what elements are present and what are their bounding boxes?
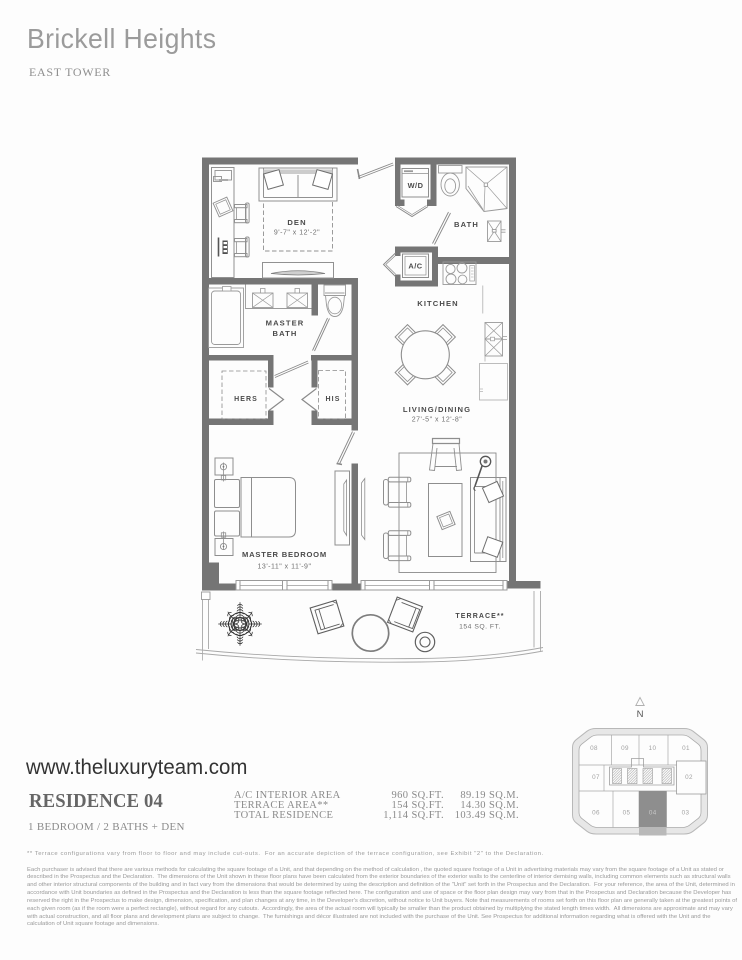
svg-text:04: 04 [649, 810, 657, 817]
svg-text:BATH: BATH [454, 220, 479, 229]
svg-text:HERS: HERS [234, 396, 258, 403]
svg-text:N: N [637, 709, 644, 720]
svg-text:W/D: W/D [408, 181, 424, 190]
svg-text:MASTER BEDROOM: MASTER BEDROOM [242, 550, 327, 559]
svg-text:27'-5" x 12'-8": 27'-5" x 12'-8" [412, 417, 463, 424]
svg-text:KITCHEN: KITCHEN [417, 299, 458, 308]
svg-text:A/C: A/C [408, 262, 422, 271]
svg-text:BATH: BATH [273, 329, 298, 338]
svg-text:06: 06 [592, 810, 600, 817]
svg-text:9'-7" x 12'-2": 9'-7" x 12'-2" [274, 230, 320, 237]
svg-text:03: 03 [682, 810, 690, 817]
svg-text:13'-11" x 11'-9": 13'-11" x 11'-9" [258, 564, 312, 571]
svg-text:154 SQ. FT.: 154 SQ. FT. [459, 624, 501, 631]
svg-text:LIVING/DINING: LIVING/DINING [403, 405, 471, 414]
svg-text:09: 09 [621, 745, 629, 752]
svg-text:07: 07 [592, 774, 600, 781]
svg-text:08: 08 [590, 745, 598, 752]
svg-text:02: 02 [685, 774, 693, 781]
svg-text:TERRACE**: TERRACE** [455, 613, 504, 620]
svg-text:MASTER: MASTER [266, 319, 305, 328]
svg-text:HIS: HIS [326, 396, 341, 403]
svg-text:01: 01 [682, 745, 690, 752]
svg-text:DEN: DEN [287, 218, 306, 227]
svg-text:10: 10 [649, 745, 657, 752]
svg-text:05: 05 [623, 810, 631, 817]
